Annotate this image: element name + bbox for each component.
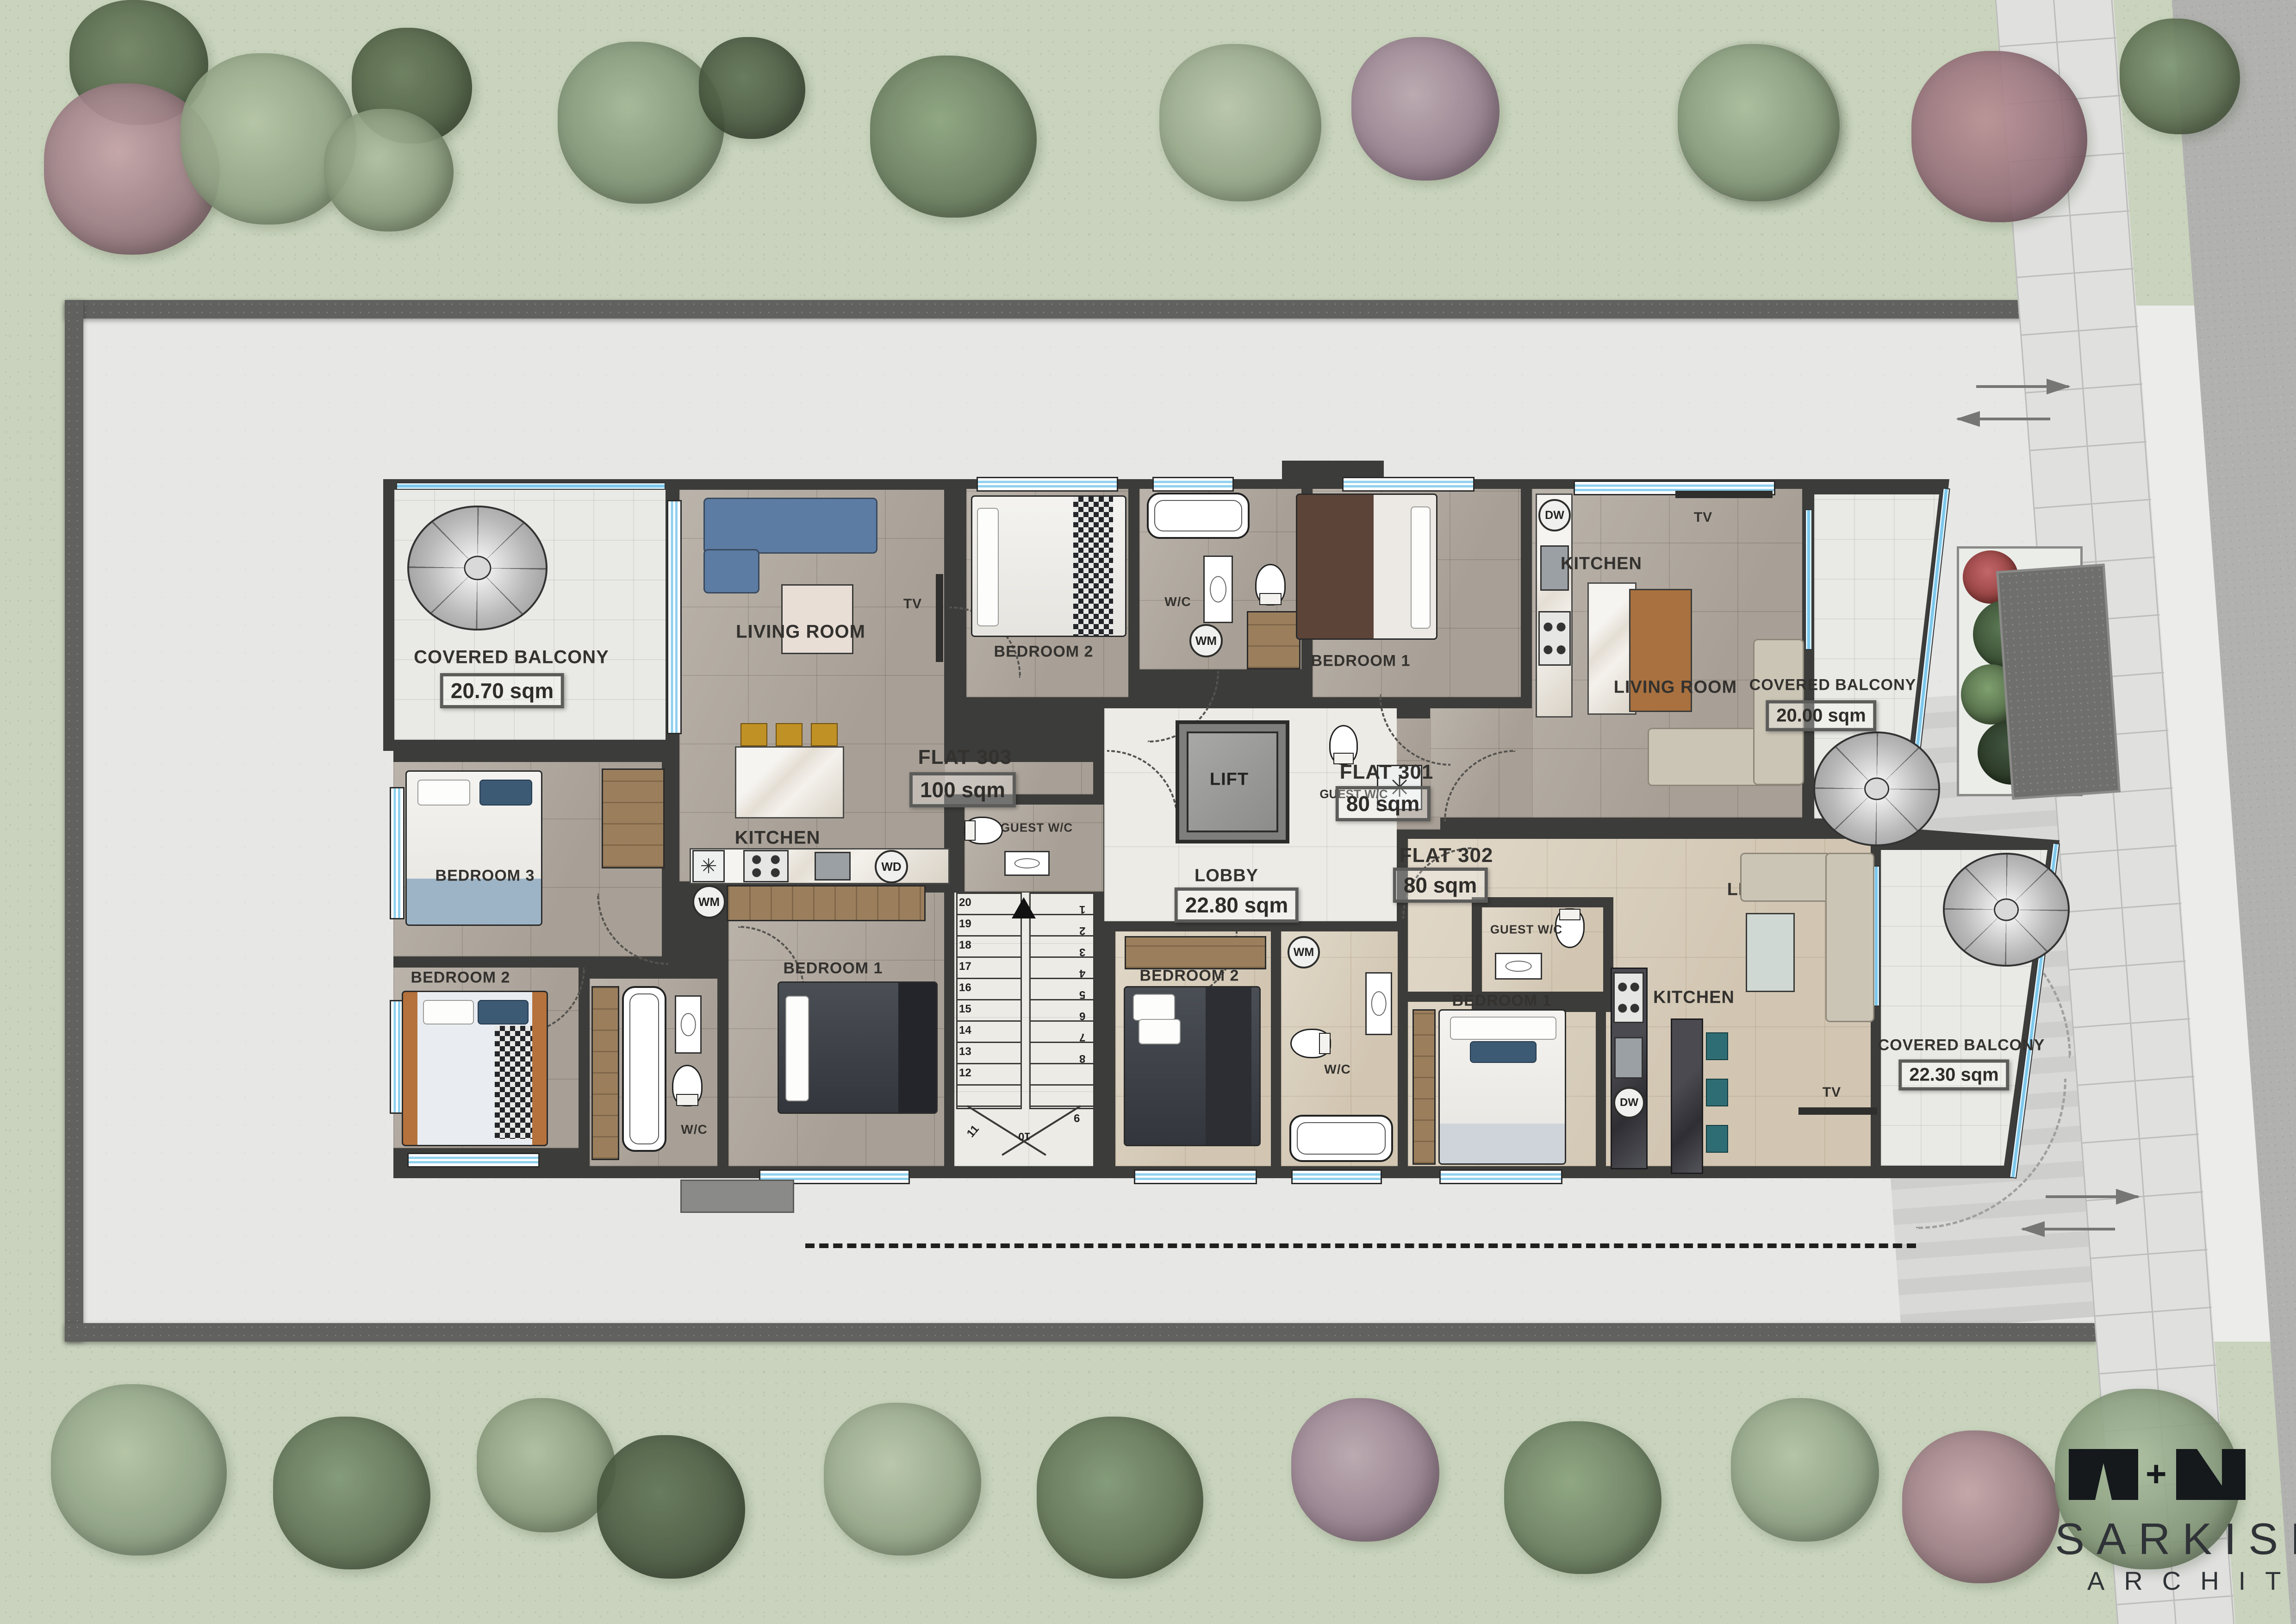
- kitchen-302-label: KITCHEN: [1653, 988, 1735, 1008]
- pillow: [423, 1000, 473, 1025]
- wardrobe: [1412, 1009, 1436, 1165]
- kitchen-sink: [815, 852, 851, 881]
- living-303-label: LIVING ROOM: [736, 622, 865, 643]
- walkway-dashed-line: [805, 1243, 1916, 1248]
- wc-303-label: W/C: [681, 1122, 707, 1137]
- flat303-name: FLAT 303: [918, 746, 1012, 769]
- bar-stool: [776, 723, 803, 746]
- lobby-label: LOBBY: [1195, 866, 1258, 886]
- direction-arrow-icon: [2046, 1195, 2138, 1198]
- pillow: [1133, 994, 1175, 1021]
- guest-wc-302-label: GUEST W/C: [1490, 923, 1562, 937]
- flat302-area: 80 sqm: [1393, 868, 1488, 903]
- bar-stool: [1706, 1032, 1728, 1060]
- stair-step-number: 2: [1079, 924, 1085, 937]
- balcony-303-title: COVERED BALCONY: [414, 647, 609, 668]
- pillow: [1139, 1019, 1181, 1044]
- bathtub: [1147, 493, 1250, 539]
- balcony-301-title: COVERED BALCONY: [1749, 676, 1916, 694]
- bar-stool: [1706, 1125, 1728, 1153]
- double-bed: [1124, 986, 1261, 1146]
- bed-throw: [898, 983, 936, 1112]
- bathroom-vanity: [1004, 851, 1050, 876]
- bathroom-vanity: [1495, 953, 1542, 980]
- balcony-303-area: 20.70 sqm: [440, 673, 564, 708]
- dishwasher-icon: DW: [1613, 1087, 1645, 1118]
- spiral-staircase: [1943, 853, 2070, 967]
- stone-patio: [1996, 563, 2121, 800]
- wardrobe: [1247, 611, 1300, 669]
- wardrobe: [602, 768, 665, 868]
- window: [977, 477, 1118, 492]
- logo-mark-n-icon: [2176, 1449, 2246, 1500]
- bathroom-vanity: [1203, 556, 1233, 623]
- guest-wc-303-label: GUEST W/C: [1001, 821, 1073, 835]
- kitchen-303-label: KITCHEN: [735, 828, 821, 849]
- site-plan-canvas: COVERED BALCONY 20.70 sqm TV LIVING ROOM…: [0, 0, 2296, 1624]
- dishwasher-icon: DW: [1538, 499, 1571, 531]
- bed-throw: [1073, 497, 1113, 636]
- pillow: [785, 996, 809, 1101]
- sofa: [1740, 853, 1831, 902]
- sofa: [1825, 853, 1874, 1022]
- direction-arrow-icon: [1976, 385, 2069, 388]
- toilet: [964, 817, 1003, 844]
- bedroom2-302-label: BEDROOM 2: [1140, 967, 1239, 985]
- toilet: [672, 1065, 703, 1106]
- kitchen-sink: [1614, 1037, 1643, 1079]
- washer-dryer-icon: WD: [875, 850, 908, 883]
- entry-step: [680, 1180, 794, 1213]
- kitchen-island: [1671, 1018, 1703, 1174]
- tree-icon: [699, 37, 805, 139]
- tv-unit: [1798, 1107, 1877, 1115]
- stair-step-number: 10: [1018, 1130, 1031, 1143]
- shower-icon: ✳: [700, 855, 717, 878]
- spiral-staircase: [407, 506, 548, 631]
- hob-icon: [743, 850, 789, 882]
- stair-up-arrow-icon: [1012, 897, 1036, 918]
- logo-mark-m-icon: [2069, 1449, 2138, 1500]
- stair-step-number: 9: [1074, 1111, 1080, 1124]
- pillow: [977, 508, 999, 626]
- stair-step-number: 13: [959, 1045, 971, 1058]
- balcony-301-area: 20.00 sqm: [1766, 700, 1876, 731]
- window: [1805, 509, 1812, 650]
- lobby-area: 22.80 sqm: [1175, 887, 1299, 923]
- window: [1152, 477, 1234, 492]
- wardrobe: [591, 986, 619, 1160]
- stair-step-number: 18: [959, 939, 971, 952]
- lift-label: LIFT: [1210, 770, 1249, 790]
- double-bed: [402, 991, 548, 1146]
- stair-step-number: 19: [959, 918, 971, 931]
- bedroom1-302-label: BEDROOM 1: [1452, 992, 1552, 1010]
- wall-bedroom1-302-east: [1596, 992, 1606, 1166]
- rug: [1746, 913, 1795, 992]
- bathtub: [622, 986, 666, 1152]
- firm-name: SARKISIAN: [2055, 1514, 2296, 1565]
- sink-glass-symbol: ✳: [692, 850, 725, 882]
- bedroom2-301-label: BEDROOM 2: [994, 643, 1094, 661]
- firm-logo: + SARKISIAN ARCHITECTS: [2055, 1449, 2277, 1602]
- pillow: [417, 780, 470, 806]
- double-bed: [1296, 493, 1437, 640]
- stair-step-number: 3: [1079, 945, 1085, 958]
- bar-stool: [740, 723, 767, 746]
- grass-strip-left: [0, 306, 65, 1342]
- stair-step-number: 4: [1079, 967, 1085, 980]
- pillow: [479, 780, 532, 806]
- window: [667, 500, 682, 734]
- bar-stool: [811, 723, 838, 746]
- stair-step-number: 1: [1079, 903, 1085, 916]
- washing-machine-icon: WM: [1189, 624, 1223, 657]
- pillow: [1470, 1041, 1537, 1063]
- stair-step-number: 6: [1079, 1009, 1085, 1022]
- stair-step-number: 16: [959, 981, 971, 994]
- bed-throw: [495, 1026, 532, 1139]
- stair-step-number: 8: [1079, 1052, 1085, 1065]
- tv-301-label: TV: [1694, 510, 1712, 525]
- flat301-name: FLAT 301: [1340, 761, 1434, 784]
- toilet: [1290, 1029, 1331, 1058]
- window: [1439, 1169, 1562, 1184]
- direction-arrow-icon: [2022, 1228, 2115, 1230]
- double-bed: [1438, 1009, 1566, 1165]
- double-bed: [971, 495, 1126, 637]
- hob-icon: [1538, 611, 1571, 666]
- room-guest-wc-303: [954, 794, 1114, 902]
- direction-arrow-icon: [1958, 418, 2050, 420]
- stair-step-number: 5: [1079, 988, 1085, 1001]
- stair-step-number: 7: [1079, 1031, 1085, 1043]
- spiral-staircase: [1813, 731, 1940, 846]
- boundary-wall-bottom: [65, 1323, 2097, 1342]
- bed-throw: [1440, 1124, 1565, 1163]
- flat301-area: 80 sqm: [1336, 786, 1431, 821]
- balcony-glazing: [396, 482, 666, 490]
- stair-step-number: 15: [959, 1003, 971, 1016]
- balcony-302-title: COVERED BALCONY: [1878, 1037, 2045, 1055]
- flat303-area: 100 sqm: [909, 772, 1016, 807]
- toilet: [1329, 725, 1358, 765]
- boundary-wall-top: [65, 300, 2069, 319]
- bed-throw: [1206, 987, 1251, 1145]
- tv-unit: [936, 574, 943, 662]
- firm-subtitle: ARCHITECTS: [2087, 1566, 2296, 1596]
- wc-301-label: W/C: [1164, 594, 1191, 609]
- window: [1134, 1169, 1257, 1184]
- logo-plus: +: [2146, 1453, 2167, 1495]
- tv-303-label: TV: [903, 596, 922, 612]
- sofa: [703, 549, 759, 593]
- bedroom3-303-label: BEDROOM 3: [436, 867, 535, 885]
- pillow: [1450, 1017, 1557, 1040]
- stair-step-number: 14: [959, 1024, 971, 1037]
- boundary-wall-left: [65, 300, 83, 1341]
- washing-machine-icon: WM: [1288, 936, 1320, 968]
- window: [1342, 477, 1475, 492]
- bathtub: [1289, 1115, 1393, 1162]
- bed-throw: [407, 879, 541, 924]
- double-bed: [778, 981, 938, 1114]
- bedroom2-303-label: BEDROOM 2: [411, 969, 510, 987]
- balcony-302-area: 22.30 sqm: [1898, 1060, 2009, 1091]
- sofa: [703, 498, 877, 554]
- tv-302-label: TV: [1823, 1085, 1841, 1100]
- window: [390, 787, 404, 919]
- tv-unit: [1675, 491, 1773, 498]
- flat302-name: FLAT 302: [1400, 844, 1493, 867]
- hob-icon: [1613, 972, 1644, 1023]
- kitchen-301-label: KITCHEN: [1561, 554, 1642, 574]
- kitchen-island: [735, 746, 844, 818]
- bedroom1-301-label: BEDROOM 1: [1311, 652, 1411, 670]
- stair-step-number: 20: [959, 896, 971, 909]
- stair-step-number: 17: [959, 960, 971, 973]
- pillow: [478, 1000, 528, 1025]
- bar-stool: [1706, 1079, 1728, 1106]
- wardrobe: [727, 885, 926, 921]
- double-bed: [405, 770, 542, 926]
- toilet: [1255, 564, 1286, 606]
- bedroom1-303-label: BEDROOM 1: [784, 960, 883, 978]
- living-301-label: LIVING ROOM: [1614, 678, 1737, 698]
- rug: [781, 584, 853, 654]
- pillow: [1411, 506, 1431, 629]
- stair-step-number: 12: [959, 1067, 971, 1080]
- window: [1291, 1169, 1382, 1184]
- bathroom-vanity: [1365, 972, 1392, 1035]
- washing-machine-icon: WM: [692, 885, 726, 918]
- bathroom-vanity: [675, 995, 702, 1054]
- window: [407, 1153, 540, 1168]
- wardrobe: [1125, 936, 1266, 969]
- wc-302-label: W/C: [1324, 1062, 1350, 1077]
